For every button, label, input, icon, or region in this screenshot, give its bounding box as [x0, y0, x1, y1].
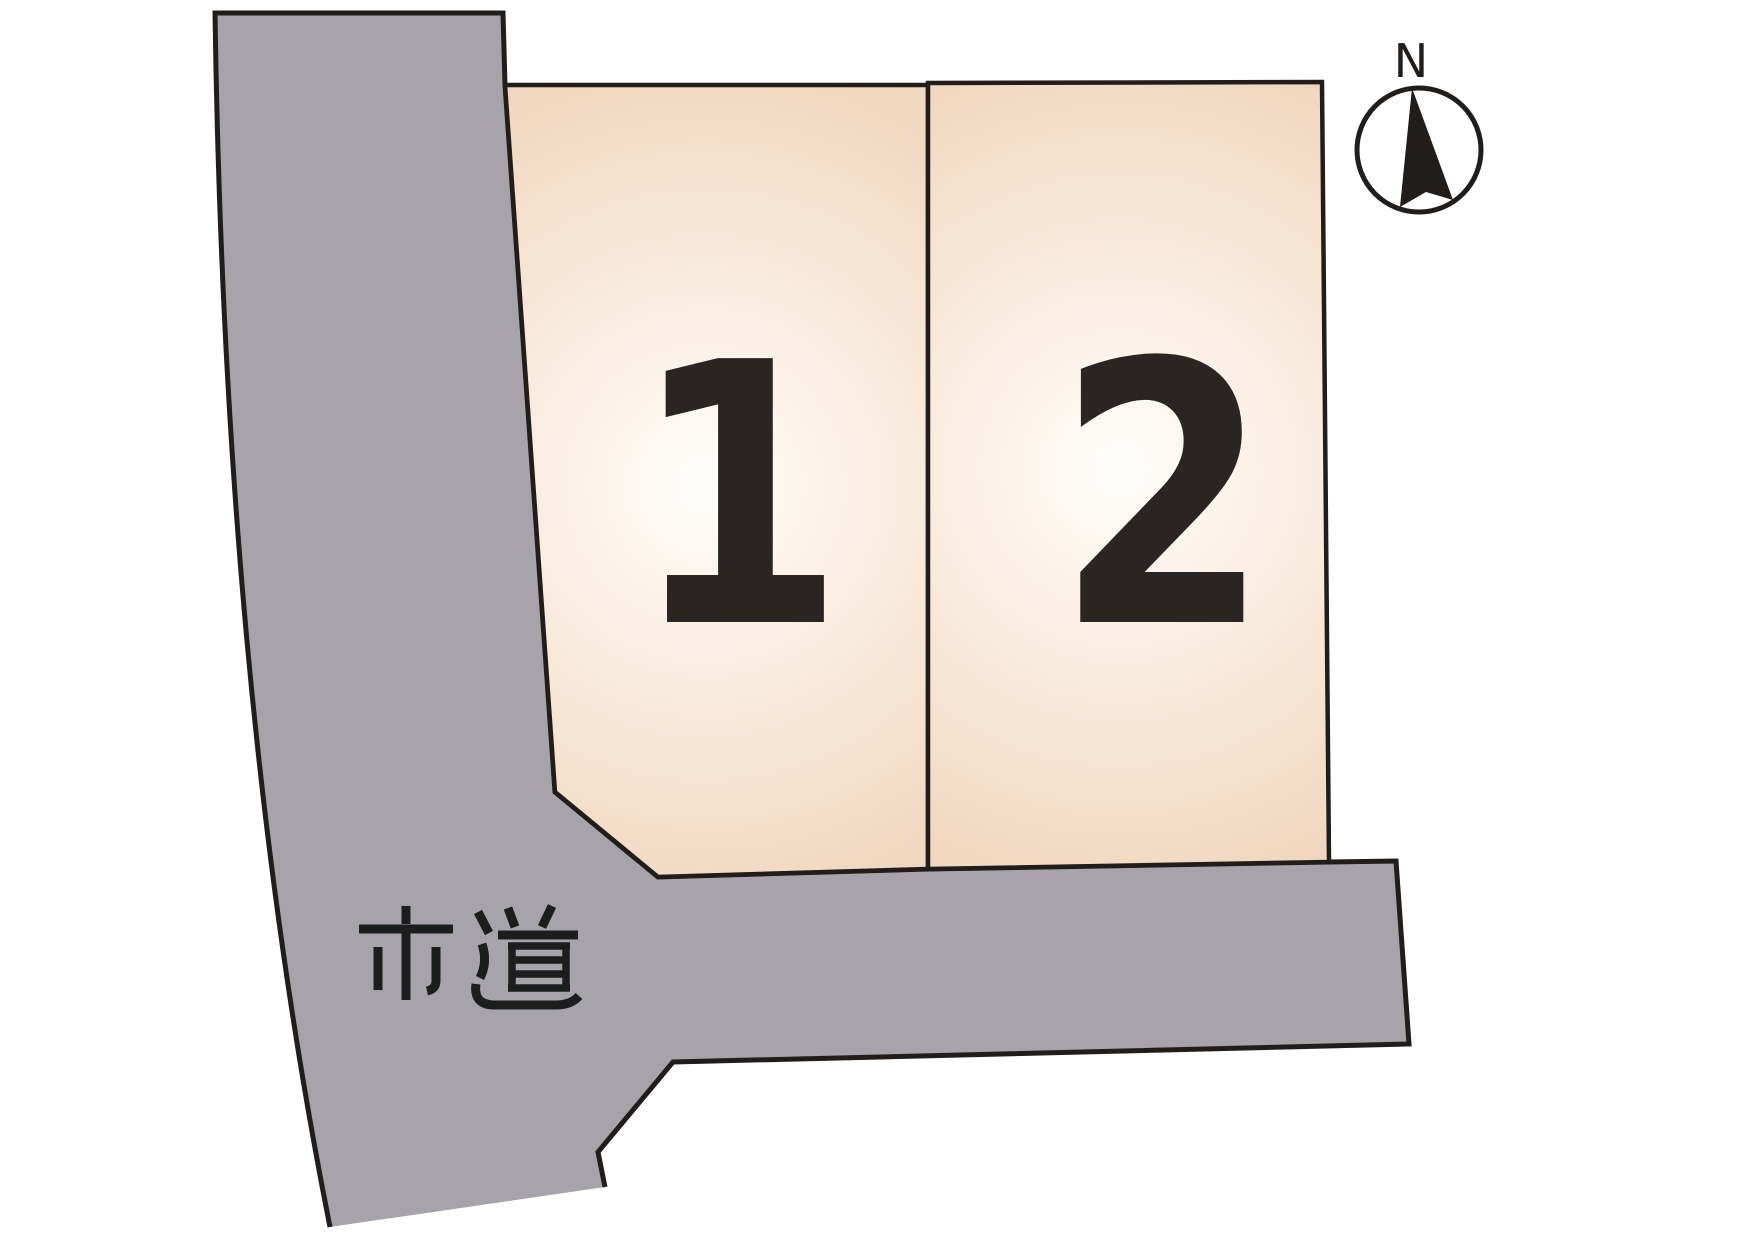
lot-2-number: 2 — [1056, 287, 1270, 708]
compass-north-label: N — [1394, 34, 1428, 88]
lot-map-page: 1 2 市道 — [0, 0, 1754, 1239]
road-label: 市道 — [359, 906, 579, 1024]
lot-1-number: 1 — [631, 287, 845, 708]
compass: N — [1357, 34, 1481, 212]
lot-map: 1 2 市道 — [0, 0, 1754, 1239]
